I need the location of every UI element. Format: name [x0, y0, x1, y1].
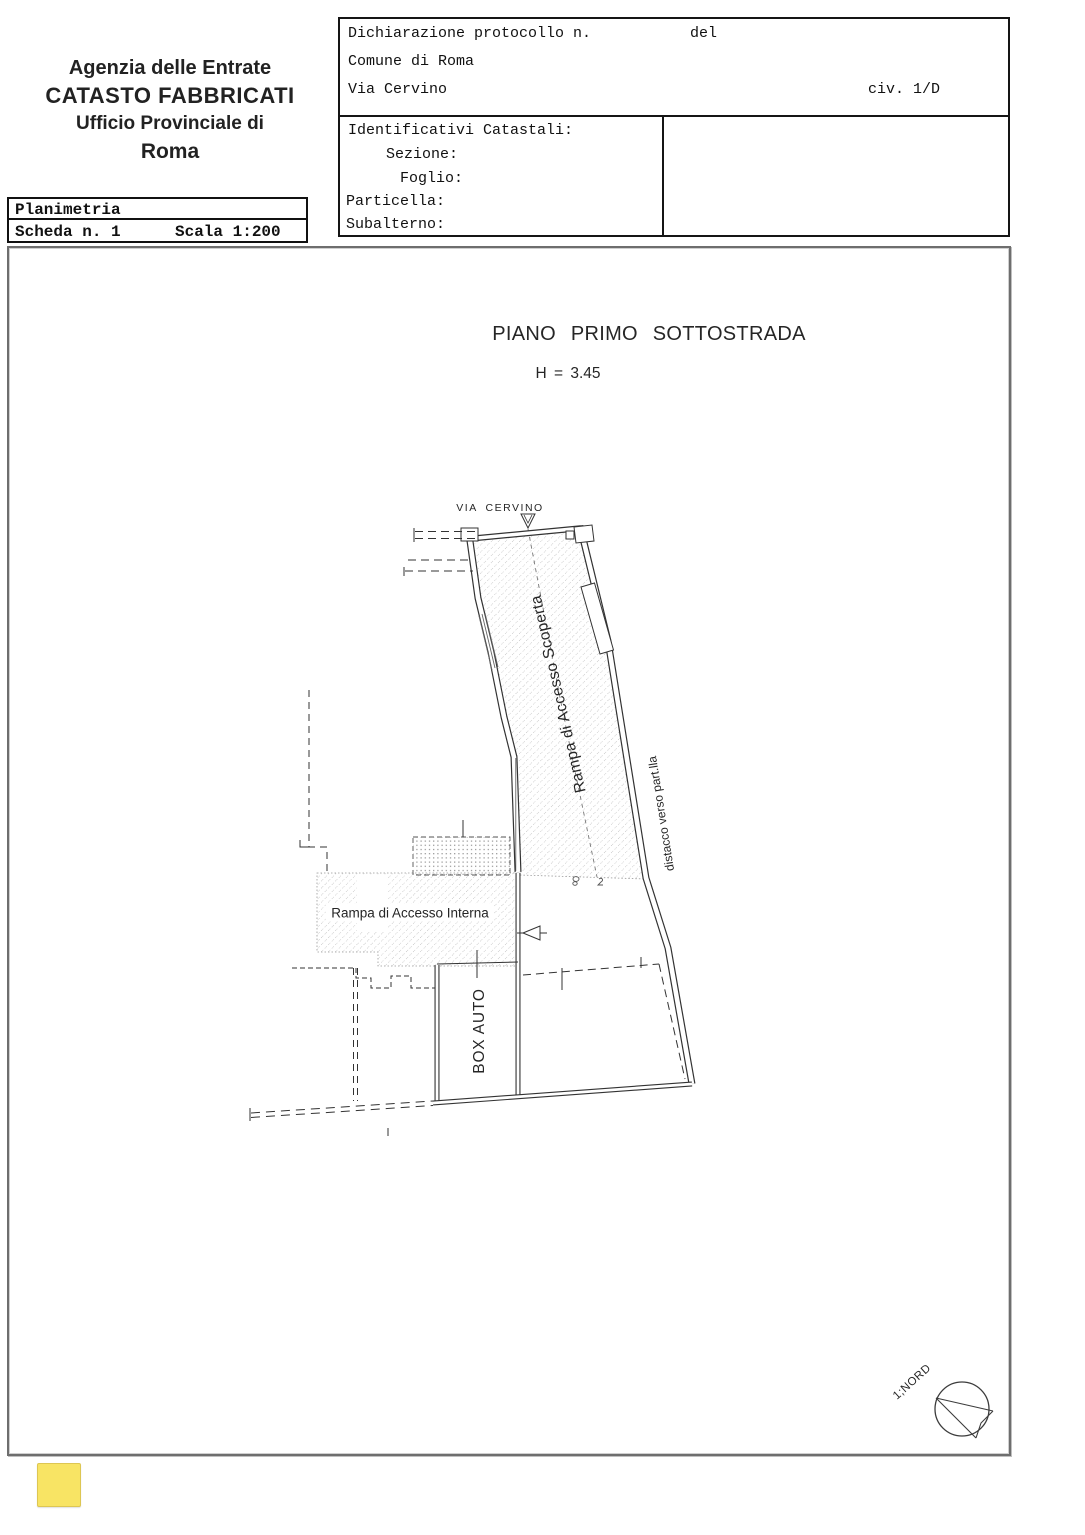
- entrance-marker: [521, 514, 535, 528]
- plan-title: PIANO PRIMO SOTTOSTRADA: [492, 323, 806, 345]
- door-marker: [517, 926, 547, 940]
- north-label: 1;NORD: [891, 1362, 934, 1402]
- cadastral-plan-page: Agenzia delle Entrate CATASTO FABBRICATI…: [0, 0, 1085, 1535]
- north-compass: [935, 1382, 993, 1438]
- floor-plan-drawing: PIANO PRIMO SOTTOSTRADA H = 3.45 VIA CER…: [0, 0, 1085, 1535]
- hatch-gap: [357, 875, 387, 932]
- dotted-landing-area: [413, 820, 510, 875]
- box-auto-label: BOX AUTO: [471, 988, 488, 1073]
- survey-marks: [573, 877, 603, 886]
- plan-height-label: H = 3.45: [535, 365, 600, 382]
- distacco-label: distacco verso part.lla: [645, 755, 677, 872]
- ramp-interna-label: Rampa di Accesso Interna: [331, 906, 489, 921]
- reference-ticks: [388, 950, 641, 1136]
- street-name-label: VIA CERVINO: [456, 502, 543, 514]
- highlight-sticker: [37, 1463, 81, 1507]
